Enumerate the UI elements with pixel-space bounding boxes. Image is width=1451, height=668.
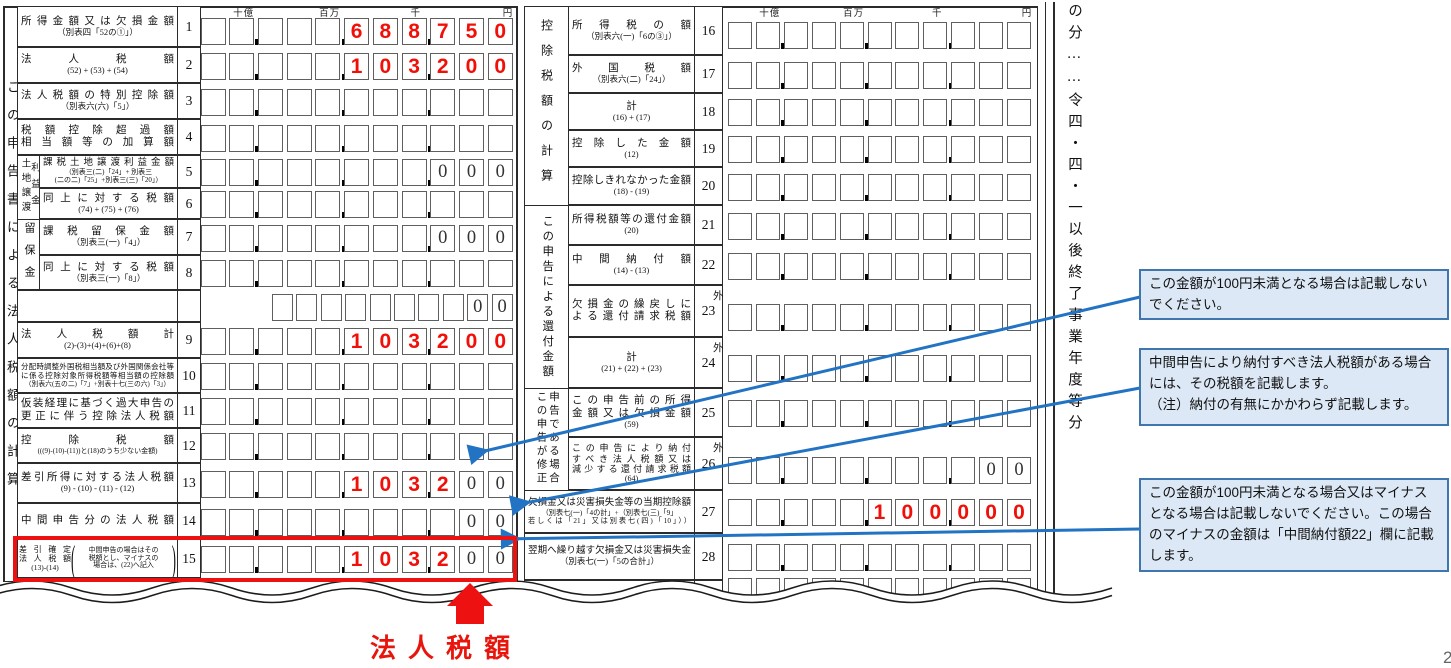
digit-box[interactable]	[923, 213, 947, 240]
digit-box[interactable]	[951, 304, 975, 331]
digit-box[interactable]	[315, 433, 340, 460]
digit-box[interactable]	[756, 213, 780, 240]
digit-box[interactable]	[315, 328, 340, 355]
digit-box[interactable]	[895, 62, 919, 89]
digit-box[interactable]	[373, 260, 398, 287]
row-number: 4	[177, 119, 201, 155]
digit-box[interactable]	[229, 159, 254, 186]
digit-box[interactable]	[430, 433, 455, 460]
digit-box[interactable]	[812, 304, 836, 331]
digit-box[interactable]	[895, 544, 919, 571]
comma-tick	[428, 530, 431, 536]
digit-box[interactable]	[784, 99, 808, 126]
digit-box[interactable]	[895, 174, 919, 201]
digit-box[interactable]	[229, 89, 254, 116]
digit-box[interactable]	[868, 544, 892, 571]
digit-box[interactable]	[287, 260, 312, 287]
digit-box[interactable]	[923, 544, 947, 571]
digit-box[interactable]	[923, 304, 947, 331]
digit-box[interactable]	[951, 457, 975, 484]
digit-box[interactable]	[287, 125, 312, 152]
digit-box[interactable]	[373, 159, 398, 186]
digit-box[interactable]	[315, 260, 340, 287]
digit-box[interactable]	[951, 99, 975, 126]
row-label: 同上に対する税額(74) + (75) + (76)	[39, 188, 178, 219]
comma-tick	[342, 419, 345, 425]
row-number: 28	[694, 533, 723, 580]
digit-box[interactable]	[287, 159, 312, 186]
digit-box[interactable]	[756, 62, 780, 89]
digit-box[interactable]	[951, 22, 975, 49]
digit-box[interactable]	[951, 62, 975, 89]
digit-box[interactable]	[402, 363, 427, 390]
digit-box[interactable]	[344, 89, 369, 116]
digit-box[interactable]	[418, 294, 439, 321]
digit-box[interactable]	[728, 304, 752, 331]
digit-box[interactable]	[895, 253, 919, 280]
digit-box[interactable]	[895, 304, 919, 331]
digit-box[interactable]	[345, 294, 366, 321]
digit-box[interactable]	[344, 260, 369, 287]
digit-box[interactable]	[201, 398, 226, 425]
digit-box[interactable]	[979, 304, 1003, 331]
digit-box[interactable]	[287, 509, 312, 536]
digit-box[interactable]	[812, 174, 836, 201]
digit-box[interactable]	[344, 363, 369, 390]
digit-box[interactable]	[728, 355, 752, 382]
digit-box[interactable]	[443, 294, 464, 321]
digit-box[interactable]	[756, 355, 780, 382]
digit-box[interactable]	[728, 544, 752, 571]
comma-tick	[342, 39, 345, 45]
digit-box[interactable]	[868, 457, 892, 484]
digit-box[interactable]	[459, 398, 484, 425]
highlight-box-row15	[13, 536, 517, 582]
digit-box[interactable]	[951, 400, 975, 427]
digit-box[interactable]	[373, 225, 398, 252]
digit-box[interactable]	[895, 136, 919, 163]
digit-box[interactable]	[321, 294, 342, 321]
digit-box[interactable]	[923, 22, 947, 49]
digit-box[interactable]	[402, 159, 427, 186]
digit-box[interactable]	[868, 304, 892, 331]
digit-box[interactable]	[229, 328, 254, 355]
digit-box[interactable]	[868, 22, 892, 49]
digit-box[interactable]	[756, 499, 780, 526]
digit-box[interactable]	[979, 544, 1003, 571]
digit-box[interactable]	[1007, 253, 1031, 280]
digit-box[interactable]	[728, 99, 752, 126]
digit-box[interactable]	[895, 213, 919, 240]
digit-box[interactable]	[258, 328, 283, 355]
digit-box[interactable]	[923, 457, 947, 484]
digit-box[interactable]	[258, 53, 283, 80]
digit-box[interactable]	[784, 499, 808, 526]
digit-box[interactable]	[868, 213, 892, 240]
digit-box[interactable]	[756, 174, 780, 201]
digit-box[interactable]	[258, 471, 283, 498]
digit-box[interactable]	[229, 398, 254, 425]
digit-box[interactable]	[373, 89, 398, 116]
digit-box[interactable]	[201, 18, 226, 45]
digit-box[interactable]	[1007, 544, 1031, 571]
digit-box[interactable]	[373, 363, 398, 390]
digit-box[interactable]	[315, 471, 340, 498]
digit-box[interactable]	[373, 125, 398, 152]
digit-box[interactable]	[756, 304, 780, 331]
comma-tick	[255, 146, 258, 152]
digit-box[interactable]	[1007, 174, 1031, 201]
digit-box[interactable]	[1007, 304, 1031, 331]
digit-box[interactable]	[459, 433, 484, 460]
digit-box[interactable]	[784, 213, 808, 240]
digit-box[interactable]	[923, 578, 947, 605]
digit-box[interactable]	[979, 213, 1003, 240]
comma-tick	[781, 565, 784, 571]
digit-box[interactable]	[840, 22, 864, 49]
digit-box[interactable]	[951, 213, 975, 240]
digit-box[interactable]	[840, 136, 864, 163]
digit-box[interactable]	[315, 509, 340, 536]
digit-box[interactable]	[784, 304, 808, 331]
digit-box[interactable]	[756, 253, 780, 280]
digit-box[interactable]	[229, 433, 254, 460]
digit-box[interactable]	[258, 159, 283, 186]
digit-box[interactable]	[812, 400, 836, 427]
row-label: 計(16) + (17)	[568, 93, 695, 130]
digit-box[interactable]	[258, 509, 283, 536]
digit-box[interactable]	[923, 62, 947, 89]
digit-box[interactable]	[258, 225, 283, 252]
digit-box[interactable]	[373, 191, 398, 218]
digit-box[interactable]	[488, 191, 513, 218]
digit-box[interactable]	[868, 99, 892, 126]
digit-box[interactable]	[315, 363, 340, 390]
digit-box[interactable]	[272, 294, 293, 321]
digit-box[interactable]	[296, 294, 317, 321]
digit-box[interactable]	[229, 125, 254, 152]
digit-box[interactable]	[201, 509, 226, 536]
digit-box[interactable]	[459, 89, 484, 116]
digit-box[interactable]	[402, 225, 427, 252]
group-label-retained: 留保金	[17, 219, 40, 290]
digit-box[interactable]	[951, 544, 975, 571]
digit-box[interactable]	[895, 400, 919, 427]
digit-box[interactable]	[430, 260, 455, 287]
digit-box[interactable]	[430, 363, 455, 390]
digit-box[interactable]	[868, 400, 892, 427]
digit-box[interactable]	[840, 499, 864, 526]
digit-box[interactable]	[756, 22, 780, 49]
digit-box[interactable]	[201, 433, 226, 460]
digit-box[interactable]	[315, 18, 340, 45]
digit-box[interactable]	[728, 136, 752, 163]
digit-box[interactable]	[287, 328, 312, 355]
digit-box[interactable]	[784, 400, 808, 427]
digit-box[interactable]	[315, 89, 340, 116]
digit-box[interactable]	[923, 136, 947, 163]
digit-box[interactable]	[756, 457, 780, 484]
digit-box[interactable]	[229, 53, 254, 80]
digit-box[interactable]	[344, 398, 369, 425]
digit-box[interactable]	[979, 253, 1003, 280]
digit-box[interactable]	[488, 89, 513, 116]
digit-box[interactable]	[315, 191, 340, 218]
digit-box[interactable]	[315, 159, 340, 186]
digit-box[interactable]	[1007, 213, 1031, 240]
digit-box[interactable]	[344, 225, 369, 252]
digit-box[interactable]	[402, 125, 427, 152]
digit-box[interactable]	[315, 125, 340, 152]
digit-box[interactable]	[923, 400, 947, 427]
digit-box[interactable]	[287, 471, 312, 498]
digit-box[interactable]	[979, 578, 1003, 605]
digit-box[interactable]	[287, 363, 312, 390]
digit-box[interactable]	[812, 578, 836, 605]
digit-box[interactable]	[951, 136, 975, 163]
digit-box[interactable]	[370, 294, 391, 321]
digit-box[interactable]	[784, 578, 808, 605]
digit-box[interactable]	[951, 174, 975, 201]
digit-box[interactable]	[315, 398, 340, 425]
digit-box[interactable]	[895, 578, 919, 605]
digit-box[interactable]	[459, 191, 484, 218]
digit-box[interactable]	[488, 433, 513, 460]
digit-box[interactable]	[373, 433, 398, 460]
digit-box[interactable]	[1007, 355, 1031, 382]
digit-box[interactable]	[895, 457, 919, 484]
digit-box[interactable]	[868, 174, 892, 201]
digit-box[interactable]	[402, 191, 427, 218]
digit-box[interactable]	[784, 136, 808, 163]
digit-box[interactable]	[923, 174, 947, 201]
digit-box[interactable]	[430, 125, 455, 152]
digit-box[interactable]	[344, 125, 369, 152]
digit-box[interactable]	[812, 136, 836, 163]
digit-box[interactable]	[923, 253, 947, 280]
digit-box[interactable]	[287, 398, 312, 425]
digit-box[interactable]	[229, 509, 254, 536]
digit-box[interactable]	[840, 355, 864, 382]
digit-box[interactable]	[258, 89, 283, 116]
digit-box[interactable]	[402, 398, 427, 425]
digit-box[interactable]	[201, 89, 226, 116]
digit-box[interactable]	[287, 225, 312, 252]
digit-box[interactable]	[229, 363, 254, 390]
row-label: 分配時調整外国税相当額及び外国関係会社等に係る控除対象所得税額等相当額の控除額（…	[17, 358, 178, 393]
digit-box[interactable]	[895, 99, 919, 126]
digit-box[interactable]	[402, 89, 427, 116]
digit-box[interactable]	[258, 433, 283, 460]
digit-box[interactable]	[258, 363, 283, 390]
digit-box[interactable]	[201, 260, 226, 287]
digit-box[interactable]	[488, 125, 513, 152]
digit-box[interactable]	[840, 253, 864, 280]
digit-box[interactable]	[812, 99, 836, 126]
digit-box[interactable]	[895, 22, 919, 49]
row-label: 計(21) + (22) + (23)	[568, 337, 695, 388]
digit-box[interactable]	[201, 328, 226, 355]
digit-box[interactable]	[868, 578, 892, 605]
digit-box[interactable]	[728, 22, 752, 49]
digit-box[interactable]	[1007, 62, 1031, 89]
digit-box[interactable]	[784, 62, 808, 89]
digit-box[interactable]	[402, 433, 427, 460]
digit-box[interactable]	[344, 159, 369, 186]
digit-box[interactable]	[979, 22, 1003, 49]
digit-box[interactable]	[784, 253, 808, 280]
digit-box[interactable]	[840, 99, 864, 126]
digit-box[interactable]	[951, 578, 975, 605]
digit-box[interactable]	[840, 400, 864, 427]
digit-value: 0	[459, 53, 484, 80]
digit-box[interactable]	[728, 400, 752, 427]
comma-tick	[865, 43, 868, 49]
digit-box[interactable]	[756, 136, 780, 163]
digit-box[interactable]	[784, 544, 808, 571]
digit-box[interactable]	[430, 191, 455, 218]
digit-box[interactable]	[868, 62, 892, 89]
digit-box[interactable]	[488, 363, 513, 390]
digit-box[interactable]	[459, 125, 484, 152]
digit-box[interactable]	[394, 294, 415, 321]
digit-box[interactable]	[229, 191, 254, 218]
digit-box[interactable]	[756, 99, 780, 126]
digit-box[interactable]	[728, 457, 752, 484]
digit-box[interactable]	[784, 355, 808, 382]
digit-box[interactable]	[201, 159, 226, 186]
digit-value: 3	[402, 471, 427, 498]
digit-box[interactable]	[840, 304, 864, 331]
digit-box[interactable]	[258, 125, 283, 152]
digit-box[interactable]	[459, 363, 484, 390]
row-label: 控除しきれなかった金額(18) - (19)	[568, 167, 695, 205]
digit-box[interactable]	[229, 18, 254, 45]
digit-box[interactable]	[315, 225, 340, 252]
digit-box[interactable]	[201, 225, 226, 252]
digit-box[interactable]	[344, 433, 369, 460]
digit-box[interactable]	[812, 253, 836, 280]
digit-box[interactable]	[840, 544, 864, 571]
digit-box[interactable]	[728, 578, 752, 605]
digit-box[interactable]	[488, 260, 513, 287]
digit-box[interactable]	[728, 213, 752, 240]
comma-tick	[949, 83, 952, 89]
digit-box[interactable]	[784, 22, 808, 49]
digit-box[interactable]	[812, 62, 836, 89]
digit-box[interactable]	[488, 398, 513, 425]
digit-box[interactable]	[756, 544, 780, 571]
digit-box[interactable]	[840, 174, 864, 201]
callout-text: 中間申告により納付すべき法人税額がある場合には、その税額を記載します。	[1149, 353, 1439, 395]
digit-box[interactable]	[728, 499, 752, 526]
digit-value: 0	[373, 328, 398, 355]
digit-box[interactable]	[840, 62, 864, 89]
digit-box[interactable]	[315, 53, 340, 80]
digit-box[interactable]	[287, 53, 312, 80]
digit-box[interactable]	[287, 18, 312, 45]
digit-box[interactable]	[868, 253, 892, 280]
digit-box[interactable]	[229, 471, 254, 498]
digit-box[interactable]	[728, 62, 752, 89]
digit-box[interactable]	[868, 136, 892, 163]
digit-box[interactable]	[979, 400, 1003, 427]
digit-box[interactable]	[728, 253, 752, 280]
digit-box[interactable]	[1007, 136, 1031, 163]
comma-tick	[342, 146, 345, 152]
digit-box[interactable]	[1007, 22, 1031, 49]
digit-box[interactable]	[287, 433, 312, 460]
digit-box[interactable]	[923, 355, 947, 382]
digit-box[interactable]	[951, 253, 975, 280]
digit-box[interactable]	[812, 213, 836, 240]
digit-box[interactable]	[812, 499, 836, 526]
digit-box[interactable]	[258, 18, 283, 45]
digit-box[interactable]	[979, 99, 1003, 126]
digit-box[interactable]	[923, 99, 947, 126]
digit-box[interactable]	[784, 457, 808, 484]
digit-box[interactable]	[229, 260, 254, 287]
digit-box[interactable]	[402, 509, 427, 536]
digit-box[interactable]	[258, 191, 283, 218]
comma-tick	[781, 274, 784, 280]
digit-box[interactable]	[979, 355, 1003, 382]
digit-box[interactable]	[979, 174, 1003, 201]
digit-box[interactable]	[895, 355, 919, 382]
digit-box[interactable]	[201, 125, 226, 152]
digit-box[interactable]	[344, 509, 369, 536]
digit-box[interactable]	[1007, 99, 1031, 126]
digit-box[interactable]	[430, 89, 455, 116]
digit-box[interactable]	[1007, 400, 1031, 427]
digit-box[interactable]	[840, 213, 864, 240]
digit-box[interactable]	[1007, 578, 1031, 605]
digit-box[interactable]	[756, 400, 780, 427]
label-line: (2)-(3)+(4)+(6)+(8)	[21, 341, 174, 351]
digit-box[interactable]	[784, 174, 808, 201]
digit-box[interactable]	[229, 225, 254, 252]
digit-box[interactable]	[951, 355, 975, 382]
digit-box[interactable]	[728, 174, 752, 201]
digit-box[interactable]	[979, 62, 1003, 89]
digit-box[interactable]	[201, 191, 226, 218]
digit-box[interactable]	[373, 509, 398, 536]
digit-box[interactable]	[258, 398, 283, 425]
comma-tick	[949, 599, 952, 605]
digit-box[interactable]	[812, 457, 836, 484]
digit-box[interactable]	[402, 260, 427, 287]
digit-box[interactable]	[840, 578, 864, 605]
digit-box[interactable]	[201, 53, 226, 80]
digit-box[interactable]	[287, 89, 312, 116]
digit-box[interactable]	[459, 260, 484, 287]
digit-box[interactable]	[201, 363, 226, 390]
digit-box[interactable]	[840, 457, 864, 484]
digit-box[interactable]	[979, 136, 1003, 163]
digit-box[interactable]	[756, 578, 780, 605]
digit-box[interactable]	[812, 544, 836, 571]
digit-box[interactable]	[344, 191, 369, 218]
digit-box[interactable]	[373, 398, 398, 425]
digit-box[interactable]	[258, 260, 283, 287]
digit-box[interactable]	[812, 355, 836, 382]
digit-box[interactable]	[287, 191, 312, 218]
digit-box[interactable]	[430, 509, 455, 536]
digit-box[interactable]	[868, 355, 892, 382]
digit-box[interactable]	[430, 398, 455, 425]
digit-box[interactable]	[812, 22, 836, 49]
digit-box[interactable]	[201, 471, 226, 498]
